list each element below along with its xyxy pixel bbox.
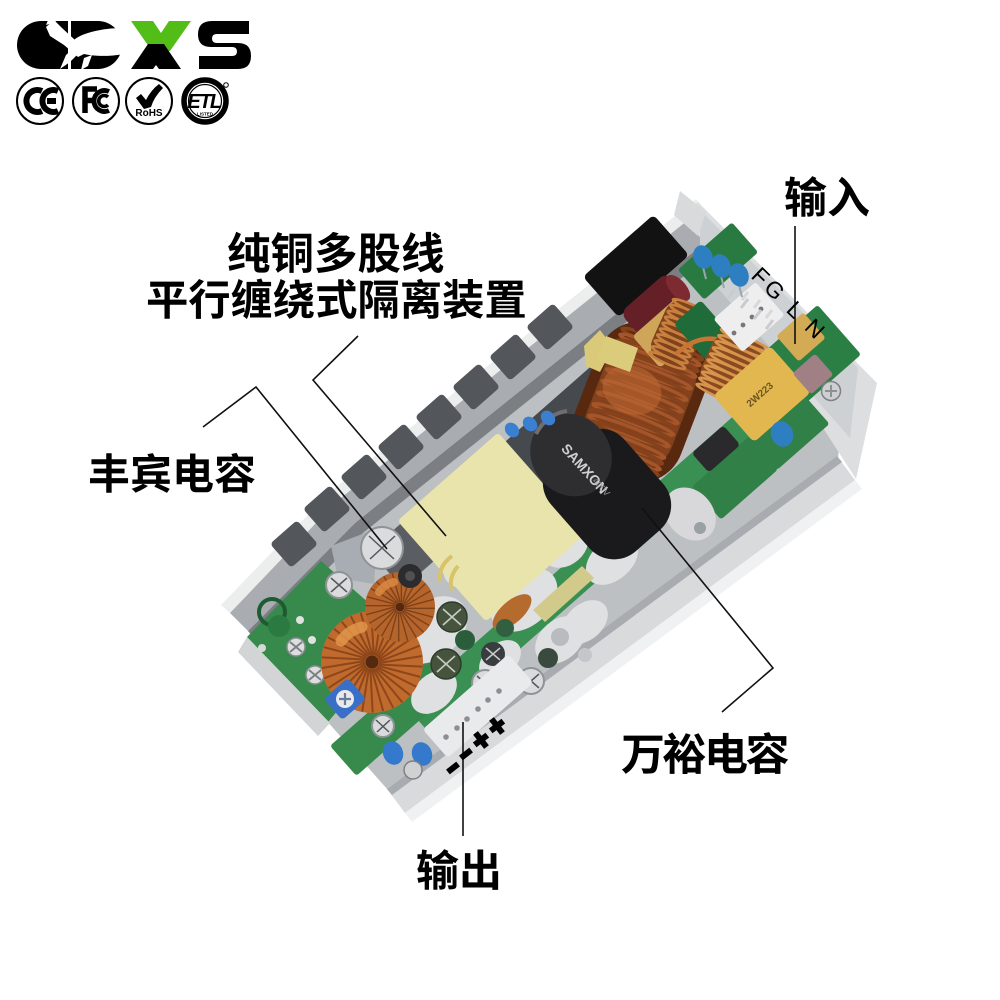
svg-text:RoHS: RoHS — [135, 108, 163, 119]
svg-text:ETL: ETL — [187, 91, 222, 113]
svg-text:LISTED: LISTED — [197, 112, 214, 117]
